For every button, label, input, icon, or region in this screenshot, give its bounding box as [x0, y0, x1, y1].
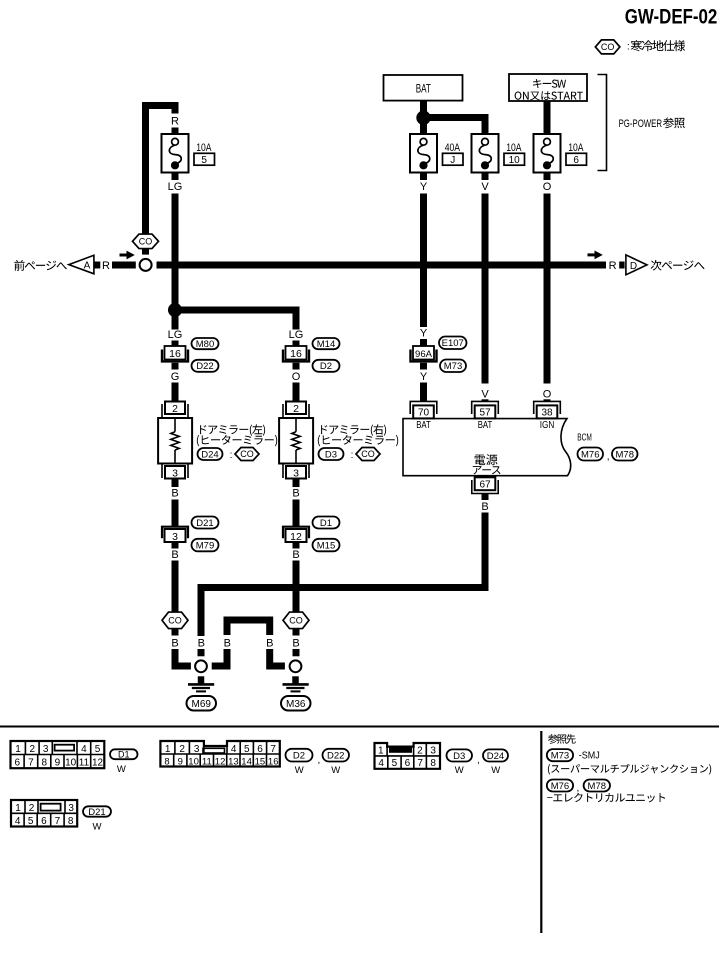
svg-text:D24: D24: [487, 751, 504, 762]
svg-text::: :: [230, 450, 233, 461]
svg-text:BAT: BAT: [416, 83, 431, 95]
svg-text:Y: Y: [420, 371, 428, 383]
svg-text:W: W: [491, 765, 500, 776]
svg-text:Y: Y: [420, 181, 428, 193]
svg-text:M14: M14: [317, 339, 335, 350]
svg-text:M76: M76: [581, 449, 599, 460]
svg-text:11: 11: [79, 757, 90, 768]
svg-text:10A: 10A: [506, 142, 522, 154]
svg-text:1: 1: [378, 746, 384, 757]
svg-text:5: 5: [244, 744, 250, 755]
svg-text:3: 3: [430, 746, 436, 757]
svg-text:,: ,: [477, 755, 480, 766]
svg-text:LG: LG: [168, 181, 183, 193]
svg-text:D21: D21: [196, 518, 213, 529]
svg-text::: :: [627, 41, 630, 53]
svg-text:9: 9: [178, 756, 183, 767]
svg-text:16: 16: [268, 756, 279, 767]
svg-text:D3: D3: [325, 449, 337, 460]
svg-text:1: 1: [15, 744, 21, 755]
svg-text:E107: E107: [442, 338, 464, 349]
svg-text:5: 5: [95, 744, 101, 755]
svg-text:40A: 40A: [445, 142, 461, 154]
svg-text:W: W: [93, 822, 102, 833]
svg-text:A: A: [84, 261, 91, 272]
svg-text:3: 3: [172, 531, 178, 543]
svg-text:10: 10: [509, 155, 521, 166]
svg-text:1: 1: [165, 744, 171, 755]
svg-text:1: 1: [15, 803, 21, 814]
svg-text:CO: CO: [139, 237, 153, 247]
svg-text:3: 3: [293, 467, 299, 479]
svg-text:10: 10: [188, 756, 199, 767]
svg-text:D: D: [630, 261, 637, 272]
svg-text:D21: D21: [88, 807, 105, 818]
svg-text:M78: M78: [616, 449, 634, 460]
svg-text:96A: 96A: [415, 349, 433, 360]
svg-text:13: 13: [228, 756, 239, 767]
svg-text:B: B: [224, 638, 231, 650]
svg-text:10: 10: [65, 757, 77, 768]
svg-text:4: 4: [378, 758, 384, 769]
svg-text:W: W: [331, 765, 340, 776]
svg-text:3: 3: [194, 744, 200, 755]
svg-text:7: 7: [417, 758, 423, 769]
svg-text:W: W: [117, 764, 126, 775]
svg-text:4: 4: [231, 744, 237, 755]
svg-text:M79: M79: [196, 540, 214, 551]
svg-text:CO: CO: [601, 42, 615, 52]
svg-text:B: B: [292, 638, 299, 650]
svg-text:BAT: BAT: [478, 420, 493, 431]
svg-text:3: 3: [43, 744, 49, 755]
svg-text:M73: M73: [444, 361, 462, 372]
svg-text:2: 2: [417, 746, 423, 757]
svg-text:LG: LG: [289, 329, 304, 341]
svg-text:W: W: [455, 765, 464, 776]
svg-text:D2: D2: [293, 751, 305, 762]
svg-text:D22: D22: [196, 361, 213, 372]
svg-text:LG: LG: [168, 329, 183, 341]
svg-text:14: 14: [241, 756, 252, 767]
svg-text:G: G: [171, 371, 180, 383]
svg-text:6: 6: [41, 816, 47, 827]
svg-text:D1: D1: [320, 518, 332, 529]
svg-text:M36: M36: [286, 699, 306, 710]
svg-text:Y: Y: [420, 328, 428, 340]
svg-text:-SMJ: -SMJ: [579, 751, 600, 762]
svg-text:2: 2: [179, 744, 185, 755]
svg-text:B: B: [292, 549, 299, 561]
svg-text:V: V: [481, 181, 489, 193]
svg-text:16: 16: [169, 348, 181, 360]
svg-text:B: B: [198, 638, 205, 650]
svg-text:8: 8: [430, 758, 436, 769]
svg-text:B: B: [171, 549, 178, 561]
svg-text:R: R: [102, 260, 110, 272]
svg-text:V: V: [481, 388, 489, 400]
svg-text:10A: 10A: [196, 142, 212, 154]
svg-text:6: 6: [405, 758, 411, 769]
svg-text:CO: CO: [168, 616, 182, 626]
svg-text:,: ,: [318, 755, 321, 766]
svg-text:57: 57: [479, 408, 491, 419]
svg-text:CO: CO: [289, 616, 303, 626]
svg-text:6: 6: [573, 155, 579, 166]
svg-text:6: 6: [15, 757, 21, 768]
svg-text:3: 3: [68, 803, 74, 814]
svg-text:PG-POWER: PG-POWER: [619, 118, 663, 130]
svg-text:7: 7: [55, 816, 61, 827]
svg-text:O: O: [543, 388, 552, 400]
svg-text:O: O: [543, 181, 552, 193]
svg-text:D24: D24: [201, 449, 218, 460]
svg-text:W: W: [295, 765, 304, 776]
svg-text:O: O: [292, 371, 301, 383]
svg-text:IGN: IGN: [540, 420, 555, 431]
svg-text:BAT: BAT: [416, 420, 431, 431]
svg-text:B: B: [171, 638, 178, 650]
svg-text:2: 2: [293, 403, 299, 415]
svg-text:,: ,: [607, 452, 610, 463]
svg-text:J: J: [450, 155, 455, 166]
svg-text:12: 12: [92, 757, 104, 768]
svg-text:,: ,: [577, 783, 580, 794]
svg-text:8: 8: [68, 816, 74, 827]
svg-text:D22: D22: [327, 751, 344, 762]
svg-text:2: 2: [30, 744, 36, 755]
svg-text:B: B: [292, 488, 299, 500]
svg-text:67: 67: [479, 480, 491, 491]
svg-text:38: 38: [541, 408, 553, 419]
svg-text:M15: M15: [317, 540, 335, 551]
svg-text:B: B: [481, 501, 488, 513]
svg-text:B: B: [266, 638, 273, 650]
svg-text:5: 5: [201, 155, 207, 166]
svg-text:R: R: [609, 260, 617, 272]
svg-text:M76: M76: [551, 781, 569, 792]
svg-text:12: 12: [290, 531, 302, 543]
svg-text:10A: 10A: [568, 142, 584, 154]
svg-text:R: R: [171, 116, 179, 128]
svg-text:M78: M78: [588, 781, 606, 792]
svg-text:11: 11: [202, 756, 212, 767]
svg-text:D2: D2: [320, 361, 332, 372]
svg-text:4: 4: [81, 744, 87, 755]
svg-text:3: 3: [172, 467, 178, 479]
svg-text:8: 8: [164, 756, 169, 767]
svg-text:M73: M73: [551, 751, 569, 762]
svg-text:70: 70: [418, 408, 430, 419]
svg-text:5: 5: [28, 816, 34, 827]
svg-text:B: B: [171, 488, 178, 500]
svg-text:6: 6: [257, 744, 263, 755]
svg-text:BCM: BCM: [577, 433, 592, 444]
svg-text:2: 2: [29, 803, 35, 814]
svg-text:8: 8: [42, 757, 48, 768]
svg-text:M80: M80: [196, 339, 214, 350]
svg-text:16: 16: [290, 348, 302, 360]
svg-text:D3: D3: [453, 751, 465, 762]
svg-text:4: 4: [15, 816, 21, 827]
svg-text:9: 9: [55, 757, 61, 768]
svg-text:2: 2: [172, 403, 178, 415]
svg-text:7: 7: [28, 757, 34, 768]
svg-text::: :: [351, 450, 354, 461]
svg-text:12: 12: [215, 756, 226, 767]
svg-text:CO: CO: [361, 449, 375, 459]
svg-text:5: 5: [392, 758, 398, 769]
svg-text:M69: M69: [192, 699, 212, 710]
svg-text:15: 15: [255, 756, 266, 767]
svg-text:D1: D1: [118, 749, 130, 759]
svg-text:GW-DEF-02: GW-DEF-02: [625, 4, 718, 28]
svg-text:CO: CO: [240, 449, 254, 459]
svg-text:7: 7: [270, 744, 276, 755]
